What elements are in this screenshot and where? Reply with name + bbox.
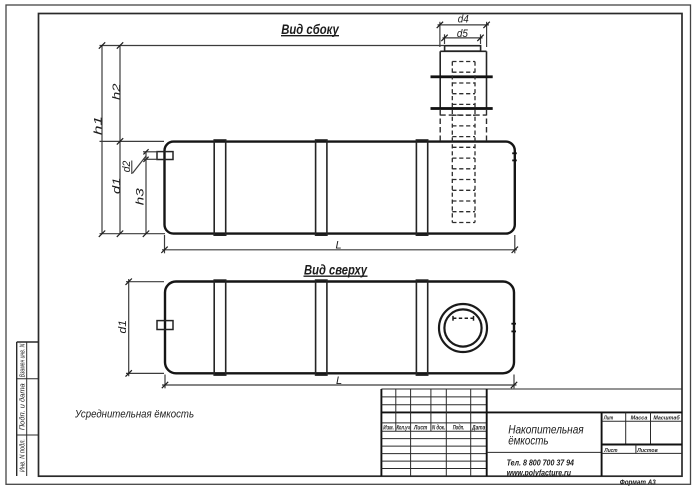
svg-text:Лист: Лист <box>413 425 427 432</box>
svg-text:L: L <box>335 239 341 251</box>
svg-text:Масса: Масса <box>631 416 649 422</box>
svg-text:h3: h3 <box>134 187 146 205</box>
svg-text:Кол.уч: Кол.уч <box>396 425 410 432</box>
svg-text:Изм.: Изм. <box>383 425 394 432</box>
svg-text:d4: d4 <box>458 13 469 25</box>
svg-text:d2: d2 <box>121 161 133 173</box>
svg-text:Инв. N подл.: Инв. N подл. <box>18 439 26 472</box>
svg-text:d1: d1 <box>111 178 123 195</box>
svg-text:Лист: Лист <box>604 448 618 454</box>
svg-text:Дата: Дата <box>471 425 485 432</box>
svg-text:Масштаб: Масштаб <box>653 415 680 422</box>
svg-text:N док.: N док. <box>432 424 445 432</box>
svg-text:Взамен инв. N: Взамен инв. N <box>19 343 26 377</box>
svg-text:Лит: Лит <box>603 416 613 422</box>
svg-text:ёмкость: ёмкость <box>508 433 548 447</box>
svg-text:Подп. и дата: Подп. и дата <box>18 383 26 430</box>
svg-text:Тел. 8 800 700 37 94: Тел. 8 800 700 37 94 <box>507 458 575 467</box>
svg-text:h1: h1 <box>92 116 104 135</box>
svg-text:Вид сверху: Вид сверху <box>304 263 368 278</box>
svg-text:d1: d1 <box>117 320 129 334</box>
svg-text:d5: d5 <box>457 28 469 40</box>
svg-text:Вид сбоку: Вид сбоку <box>281 22 340 37</box>
svg-text:Листов: Листов <box>636 448 658 454</box>
svg-text:h2: h2 <box>111 84 123 101</box>
svg-text:www.polyfacture.ru: www.polyfacture.ru <box>507 468 571 477</box>
svg-text:L: L <box>336 375 342 387</box>
svg-text:Формат А3: Формат А3 <box>620 479 656 486</box>
svg-text:Подп.: Подп. <box>453 424 465 432</box>
svg-text:Усреднительная ёмкость: Усреднительная ёмкость <box>74 409 194 421</box>
